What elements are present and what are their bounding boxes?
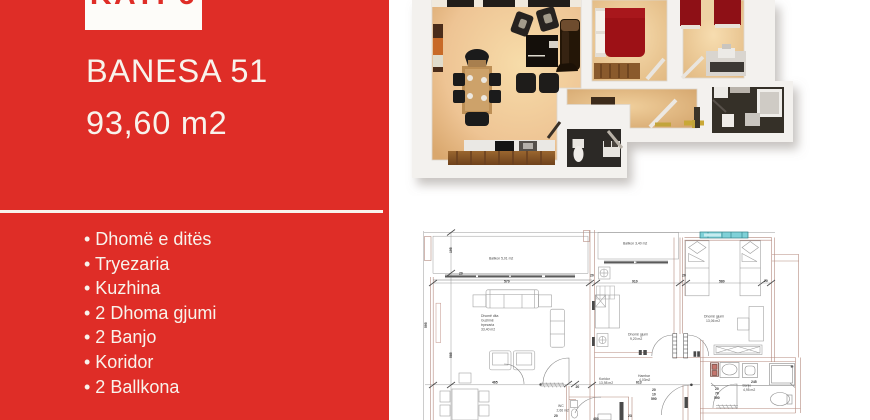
svg-text:10: 10 [652,393,656,397]
svg-text:20: 20 [715,387,719,391]
svg-text:20: 20 [652,388,656,392]
svg-text:20: 20 [590,274,594,278]
svg-text:613: 613 [636,381,642,385]
svg-text:Dhomë gjumi: Dhomë gjumi [704,315,724,319]
svg-text:20: 20 [554,414,558,418]
svg-text:Guzhinë: Guzhinë [481,319,494,323]
svg-text:70: 70 [715,392,719,396]
svg-text:910: 910 [632,279,638,283]
svg-text:13,98 m2: 13,98 m2 [599,381,613,385]
svg-text:Ballkon 3,40 m2: Ballkon 3,40 m2 [623,242,647,246]
svg-text:595: 595 [424,322,428,328]
svg-text:9,20 m2: 9,20 m2 [630,337,642,341]
svg-text:4,95 m2: 4,95 m2 [743,388,755,392]
svg-text:20: 20 [764,279,768,283]
svg-text:590: 590 [714,396,720,400]
svg-text:33,40 m2: 33,40 m2 [481,328,495,332]
svg-text:585: 585 [449,352,453,358]
svg-text:13,06 m2: 13,06 m2 [706,319,720,323]
svg-text:2,66 m2: 2,66 m2 [557,409,569,413]
svg-text:580: 580 [719,279,725,283]
svg-text:20: 20 [576,385,580,389]
svg-text:20: 20 [682,274,686,278]
svg-text:23: 23 [628,414,632,418]
svg-text:195: 195 [449,247,453,253]
svg-text:Banjo: Banjo [743,384,752,388]
svg-text:trpezaria: trpezaria [481,323,494,327]
svg-text:465: 465 [492,380,498,384]
svg-text:Dhomë gjumi: Dhomë gjumi [628,333,648,337]
svg-text:WC: WC [558,404,564,408]
svg-text:Ballkon 5,01 m2: Ballkon 5,01 m2 [489,257,513,261]
svg-text:245: 245 [751,380,757,384]
svg-text:Dhomë dita: Dhomë dita [481,314,498,318]
svg-text:590: 590 [651,397,657,401]
svg-text:20: 20 [459,272,463,276]
svg-text:570: 570 [504,279,510,283]
